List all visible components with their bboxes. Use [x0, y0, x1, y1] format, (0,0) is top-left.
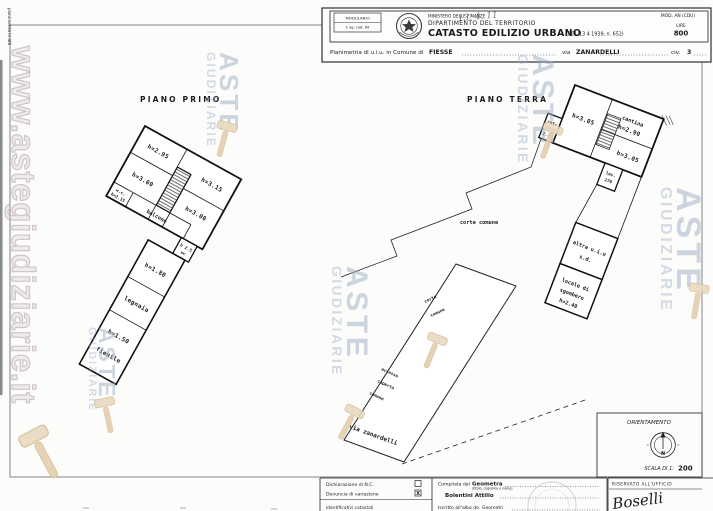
via-label: via	[562, 50, 570, 56]
decl-nc-label: Dichiarazione di N.C.	[326, 482, 374, 488]
fee-value: 800	[674, 30, 689, 38]
courtyard-boundary	[341, 139, 541, 277]
compiled-by-label: Compilata dal	[438, 482, 470, 488]
planimetria-prefix: Planimetria di u.i.u. in Comune di	[330, 50, 424, 56]
fold-marks	[83, 508, 277, 509]
piano-primo-plan: h=2.95 h=3.00 w.c. h=2.15 balcone h=3.15…	[29, 126, 242, 389]
office-signature: Boselli	[610, 489, 664, 511]
compiled-name: Bolentini Attilio	[445, 493, 494, 499]
sheet-drawing: planimetria in atti MODULARIO F. ag. cas…	[0, 0, 713, 511]
declaration-table: Dichiarazione di N.C. Denuncia di variaz…	[320, 478, 607, 511]
comune-value: FIESSE	[429, 49, 453, 56]
civ-label: civ.	[671, 50, 681, 56]
checkbox-dichiarazione	[415, 481, 421, 487]
via-value: ZANARDELLI	[576, 49, 620, 56]
header-block: MODULARIO F. ag. cast. 64 MINISTERO DELL…	[322, 8, 711, 62]
primo-annex	[79, 240, 185, 385]
scale-label: SCALA DI 1:	[644, 466, 674, 472]
piano-terra-title: PIANO TERRA	[467, 95, 548, 104]
corte-comune-label: corte comune	[460, 220, 498, 226]
mod-code: MOD. AN (CDU)	[661, 13, 695, 19]
document-title: CATASTO EDILIZIO URBANO	[428, 28, 581, 39]
civ-value: 3	[687, 49, 691, 56]
compiled-sub: (titolo, cognome e nome)	[472, 487, 512, 491]
modulario-sub: F. ag. cast. 64	[346, 26, 369, 30]
office-reserved-box: RISERVATO ALL'UFFICIO Boselli	[608, 478, 713, 511]
cadastral-planimetry-sheet: planimetria in atti MODULARIO F. ag. cas…	[0, 0, 713, 511]
document-title-ref: (RDL 13 4 1939, n. 652)	[566, 32, 624, 38]
scan-edge-artifact	[0, 60, 3, 395]
checkbox-denuncia-mark: X	[416, 491, 420, 497]
fee-label: LIRE	[676, 23, 686, 29]
orientation-title: ORIENTAMENTO	[627, 420, 672, 426]
margin-note: planimetria in atti	[7, 8, 12, 45]
orientation-box: ORIENTAMENTO N SCALA DI 1: 200	[597, 413, 702, 477]
albo-line: Iscritto all'albo de. Geometri	[438, 505, 503, 511]
modulario-label: MODULARIO	[345, 16, 369, 21]
north-label: N	[661, 451, 665, 457]
decl-variazione-label: Denuncia di variazione	[326, 492, 379, 498]
decl-identificativi-label: Identificativi catastali	[326, 505, 374, 511]
reserved-label: RISERVATO ALL'UFFICIO	[612, 482, 672, 487]
scale-value: 200	[678, 465, 693, 473]
piano-primo-title: PIANO PRIMO	[140, 95, 221, 104]
